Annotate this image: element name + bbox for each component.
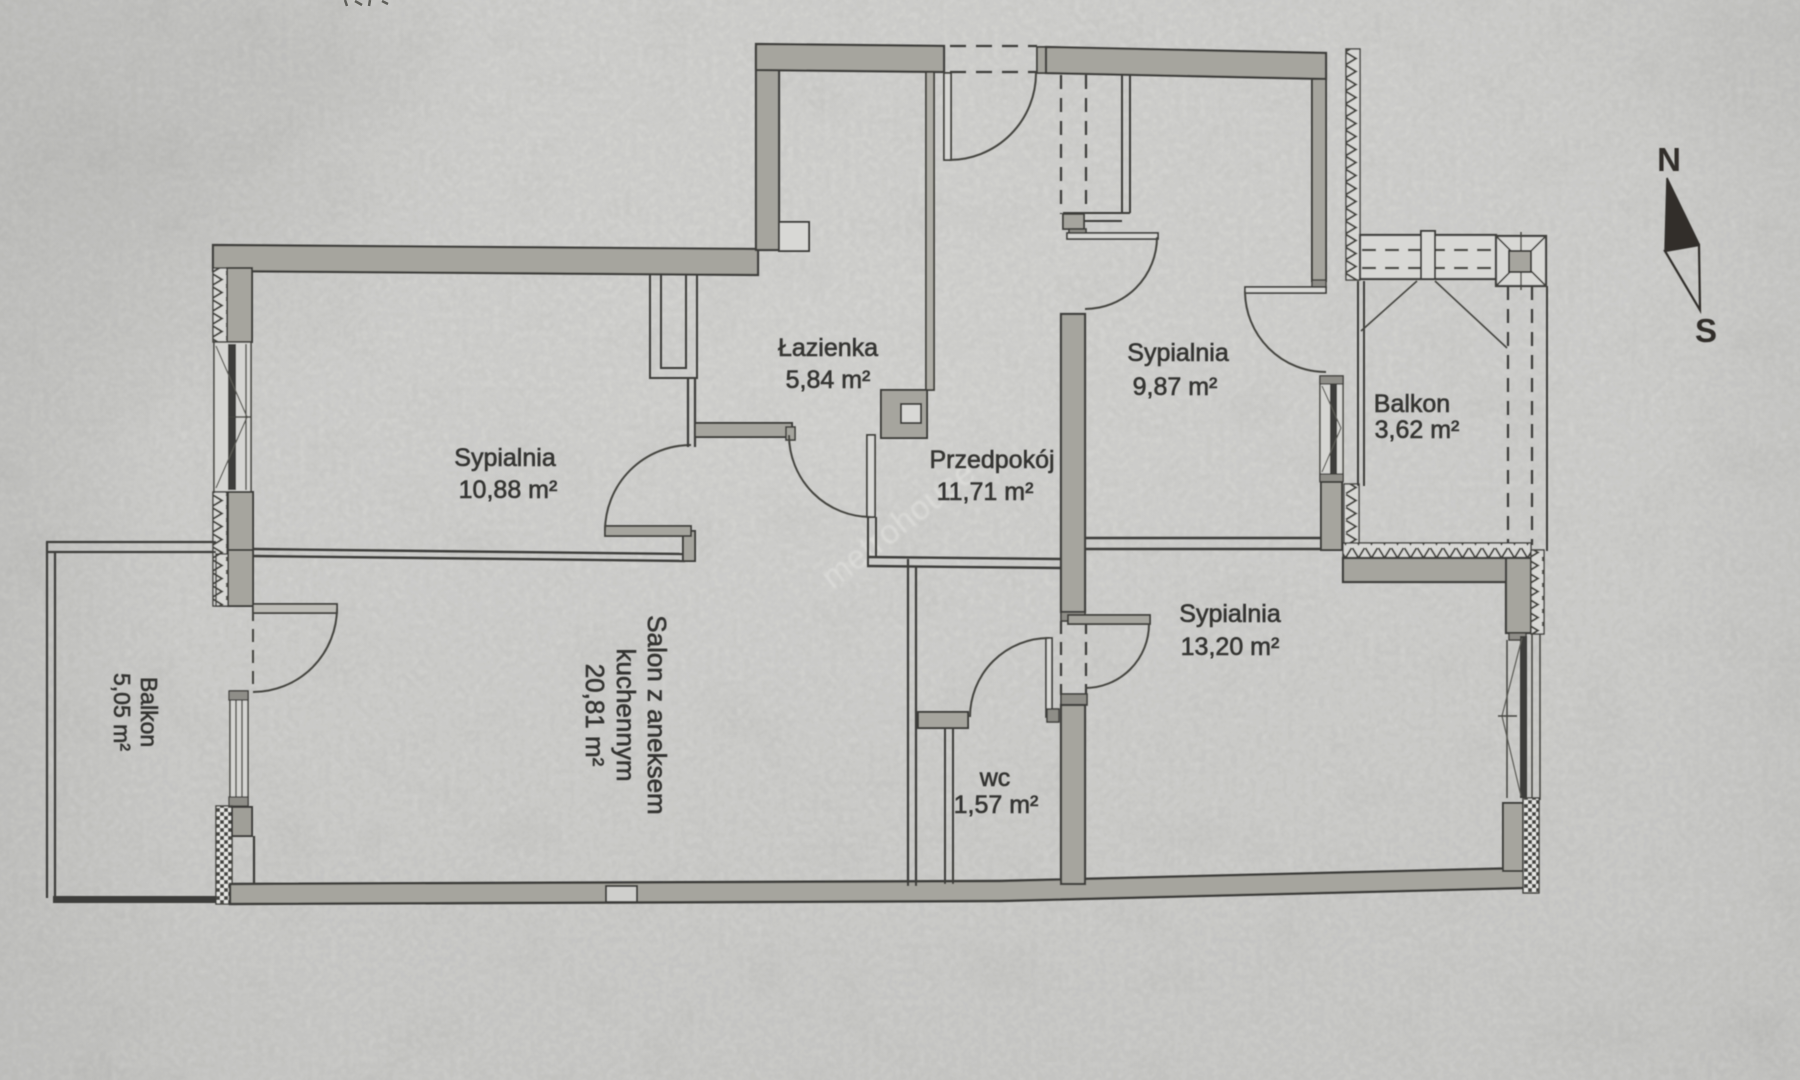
svg-text:Przedpokój: Przedpokój bbox=[929, 446, 1054, 474]
svg-text:N: N bbox=[1657, 141, 1681, 178]
svg-text:Salon z aneksem: Salon z aneksem bbox=[642, 615, 672, 814]
svg-text:Sypialnia: Sypialnia bbox=[454, 444, 556, 472]
svg-text:wc: wc bbox=[979, 764, 1011, 792]
svg-text:13,20 m²: 13,20 m² bbox=[1181, 633, 1280, 661]
svg-text:5,84 m²: 5,84 m² bbox=[786, 366, 871, 394]
svg-text:kuchennym: kuchennym bbox=[611, 649, 641, 782]
svg-text:20,81 m²: 20,81 m² bbox=[580, 664, 610, 767]
svg-text:3,62 m²: 3,62 m² bbox=[1375, 416, 1460, 444]
svg-text:Łazienka: Łazienka bbox=[778, 334, 878, 362]
svg-text:Balkon: Balkon bbox=[1374, 390, 1450, 418]
svg-text:10,88 m²: 10,88 m² bbox=[459, 476, 558, 504]
svg-text:5,05 m²: 5,05 m² bbox=[109, 673, 135, 751]
svg-text:S: S bbox=[1695, 312, 1717, 349]
svg-text:9,87 m²: 9,87 m² bbox=[1133, 373, 1218, 401]
svg-text:Sypialnia: Sypialnia bbox=[1127, 339, 1229, 367]
svg-text:1,57 m²: 1,57 m² bbox=[954, 791, 1039, 819]
svg-text:Balkon: Balkon bbox=[136, 677, 162, 747]
svg-text:Sypialnia: Sypialnia bbox=[1179, 600, 1281, 628]
svg-text:11,71 m²: 11,71 m² bbox=[937, 478, 1034, 506]
